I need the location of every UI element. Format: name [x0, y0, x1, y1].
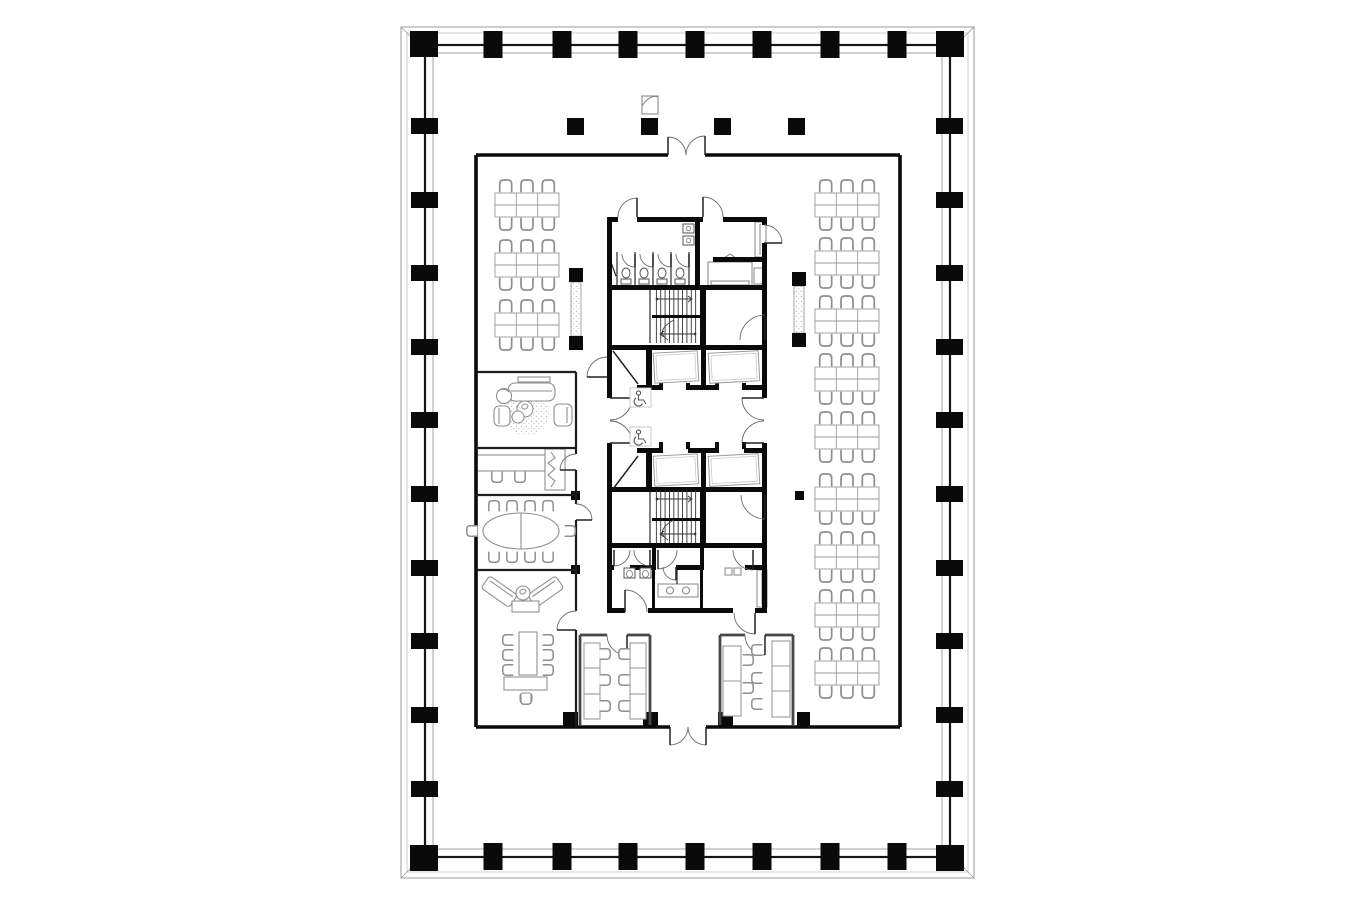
column	[936, 265, 963, 281]
door-swing-entry-south-left	[670, 727, 688, 745]
chair	[862, 628, 874, 640]
toilet	[622, 268, 630, 278]
core-wall	[652, 565, 655, 608]
chair	[500, 300, 512, 312]
door-arc	[688, 727, 706, 745]
corner-column	[936, 845, 964, 871]
chair	[841, 686, 853, 698]
toilet-tank	[675, 279, 685, 284]
elevator-car	[708, 351, 760, 384]
stair-landing	[652, 315, 700, 318]
desk-cluster	[815, 180, 879, 230]
column	[936, 633, 963, 649]
chair	[543, 501, 553, 512]
chair	[525, 501, 535, 512]
door-arc	[742, 398, 764, 420]
chair	[500, 218, 512, 230]
chair	[841, 392, 853, 404]
door-swing-lobby-west-a	[610, 398, 632, 420]
door-arc	[686, 136, 705, 155]
door-arc	[587, 357, 607, 377]
column	[936, 339, 963, 355]
core-wall	[723, 217, 767, 222]
toilet	[676, 268, 684, 278]
conference-furniture	[483, 513, 559, 549]
chair	[752, 699, 763, 709]
chair	[500, 338, 512, 350]
chair	[841, 276, 853, 288]
chair	[841, 238, 853, 250]
chair	[820, 512, 832, 524]
core-wall	[755, 608, 767, 613]
lounge-armchair	[554, 404, 572, 426]
door-arc	[764, 225, 782, 243]
chair	[820, 218, 832, 230]
column	[936, 560, 963, 576]
chair	[521, 694, 531, 705]
core-wall	[607, 285, 767, 290]
elevator-jamb	[686, 383, 690, 390]
door-swing-entry-north-left	[668, 137, 686, 155]
chair	[820, 296, 832, 308]
desk-cluster	[815, 296, 879, 346]
chair	[600, 701, 611, 711]
chair	[820, 648, 832, 660]
chair	[500, 240, 512, 252]
chair	[820, 474, 832, 486]
column	[553, 31, 572, 58]
column	[411, 560, 438, 576]
corner-column	[936, 31, 964, 57]
elevator-car	[653, 454, 699, 486]
arrow-tail	[694, 533, 697, 536]
chair	[862, 296, 874, 308]
corner-column	[410, 845, 438, 871]
desk-cluster	[815, 532, 879, 582]
chair	[489, 501, 499, 512]
toilet-tank	[639, 279, 649, 284]
door-arc	[557, 611, 576, 630]
door-leaf	[613, 456, 638, 489]
chair	[542, 278, 554, 290]
door-arc	[740, 315, 765, 340]
chair	[503, 665, 514, 675]
door-arc	[658, 550, 677, 569]
core-wall	[762, 217, 767, 225]
stairs	[652, 290, 700, 543]
desk-cluster	[815, 590, 879, 640]
door-swing-lobby-east-a	[742, 398, 764, 420]
door-swing-wc-south-exit	[625, 590, 647, 612]
chair	[862, 570, 874, 582]
chair	[515, 472, 525, 483]
core-wall	[701, 448, 706, 492]
column	[619, 843, 638, 870]
door-arc	[734, 613, 755, 634]
fire-cabinet	[642, 96, 658, 114]
door-arc	[618, 198, 637, 217]
door-arc	[663, 567, 676, 580]
door-swing-corridor-north	[587, 357, 607, 377]
arrow-tail	[656, 298, 659, 301]
accessibility-icons	[630, 388, 651, 446]
core-wall	[762, 443, 767, 613]
toilet	[640, 268, 648, 278]
chair	[841, 474, 853, 486]
chair	[862, 450, 874, 462]
chair	[862, 412, 874, 424]
chair	[542, 218, 554, 230]
column	[411, 707, 438, 723]
chair	[862, 334, 874, 346]
column	[553, 843, 572, 870]
screen-panel	[571, 282, 581, 336]
credenza	[504, 677, 547, 690]
small-office-furniture	[477, 449, 565, 490]
chair	[503, 635, 514, 645]
desk-cluster	[495, 180, 559, 230]
toilet-tank	[657, 279, 667, 284]
kitchen-counter	[708, 262, 752, 286]
core-wall	[700, 285, 706, 350]
chair	[489, 552, 499, 563]
chair	[862, 218, 874, 230]
door-swing-stall-4	[676, 254, 689, 267]
floor-plan-canvas	[0, 0, 1360, 900]
privacy-screen	[569, 268, 583, 350]
curtain-wall-line	[407, 33, 968, 872]
column	[411, 192, 438, 208]
door-swing-wc-stall-mid	[663, 567, 676, 580]
core-wall	[607, 608, 625, 613]
desk-cluster	[495, 240, 559, 290]
core-wall	[607, 217, 612, 398]
column	[888, 31, 907, 58]
core-wall	[607, 543, 767, 548]
core-wall	[646, 448, 652, 492]
door-arc	[658, 254, 671, 267]
chair	[862, 590, 874, 602]
chair	[521, 180, 533, 192]
wheelchair-icon	[630, 388, 651, 407]
column	[411, 412, 438, 428]
chair	[500, 180, 512, 192]
column	[411, 265, 438, 281]
chair	[862, 512, 874, 524]
core-wall	[744, 385, 762, 390]
door-arc	[625, 590, 647, 612]
sink-counter	[658, 584, 698, 597]
column	[788, 118, 805, 135]
column	[619, 31, 638, 58]
door-arc	[610, 421, 632, 443]
chair	[467, 526, 478, 536]
chair	[862, 532, 874, 544]
column	[569, 268, 583, 282]
lounge-console	[518, 377, 550, 382]
chair	[862, 276, 874, 288]
column	[792, 272, 806, 286]
door-arc	[634, 550, 650, 566]
column	[686, 31, 705, 58]
column	[411, 781, 438, 797]
walk-line	[662, 320, 674, 340]
door-swing-vestibule-a2	[634, 550, 650, 566]
chair	[841, 532, 853, 544]
chair	[543, 635, 554, 645]
column	[411, 118, 438, 134]
door-swing-entry-south-right	[688, 727, 706, 745]
chair	[542, 300, 554, 312]
door-swing-vestibule-a1	[614, 550, 630, 566]
door-arc	[670, 727, 688, 745]
door-arc	[741, 495, 765, 519]
core-wall	[701, 345, 706, 390]
chair	[820, 686, 832, 698]
chair	[752, 645, 763, 655]
desk	[477, 455, 545, 471]
column	[936, 707, 963, 723]
elevator-jamb	[742, 383, 746, 390]
column	[936, 118, 963, 134]
stair-flight	[652, 290, 700, 343]
chair	[600, 649, 611, 659]
privacy-screens	[569, 268, 806, 350]
desk-cluster	[815, 354, 879, 404]
urinal	[640, 568, 651, 578]
chair	[862, 180, 874, 192]
urinal	[624, 568, 635, 578]
elevator-jamb	[659, 383, 663, 390]
column	[753, 843, 772, 870]
chair	[507, 552, 517, 563]
column	[569, 336, 583, 350]
side-table	[516, 586, 530, 600]
chair	[862, 474, 874, 486]
column	[792, 333, 806, 347]
wheelchair-icon	[630, 427, 651, 446]
chair	[503, 650, 514, 660]
mens-wc-fixtures	[658, 568, 767, 607]
door-swing-entry-north-right	[686, 136, 705, 155]
chair	[820, 392, 832, 404]
toilet	[658, 268, 666, 278]
chair	[521, 218, 533, 230]
chair	[862, 392, 874, 404]
door-swing-stall-2	[640, 254, 653, 267]
chair	[841, 450, 853, 462]
core-wall	[695, 217, 700, 290]
column	[936, 192, 963, 208]
core-wall	[676, 565, 703, 570]
chair	[841, 412, 853, 424]
elevator-jamb	[715, 383, 719, 390]
sink	[683, 224, 694, 233]
chair	[841, 354, 853, 366]
core-wall	[744, 448, 762, 453]
door-swing-pantry-east	[764, 225, 782, 243]
chair	[820, 354, 832, 366]
door-arc	[614, 550, 630, 566]
column	[411, 486, 438, 502]
column	[484, 843, 503, 870]
chair	[820, 412, 832, 424]
column	[411, 339, 438, 355]
walk-line	[662, 520, 674, 540]
column	[686, 843, 705, 870]
chair	[820, 238, 832, 250]
elevator-car	[653, 351, 699, 383]
column	[411, 633, 438, 649]
chair	[841, 334, 853, 346]
chair	[841, 590, 853, 602]
door-swing-meeting-lounge-door	[557, 611, 576, 630]
chair	[521, 240, 533, 252]
chair	[525, 552, 535, 563]
chair	[820, 570, 832, 582]
chair	[543, 552, 553, 563]
chair	[619, 675, 630, 685]
chair	[543, 650, 554, 660]
door-swing-stall-3	[658, 254, 671, 267]
elevator-jamb	[686, 442, 690, 449]
chair	[862, 686, 874, 698]
chair	[542, 338, 554, 350]
elevator-jamb	[659, 442, 663, 449]
floor-plan-page	[0, 0, 1360, 900]
door-swing-stair-north-room	[740, 315, 765, 340]
chair	[619, 701, 630, 711]
coffee-table	[512, 601, 539, 612]
meeting-table	[519, 632, 537, 675]
chair	[820, 450, 832, 462]
chair	[565, 526, 576, 536]
door-arc	[703, 197, 723, 217]
screen-panel	[794, 286, 804, 333]
chair	[841, 570, 853, 582]
desk-cluster	[815, 238, 879, 288]
column	[797, 712, 810, 726]
column	[936, 412, 963, 428]
chair	[752, 673, 763, 683]
chair	[862, 648, 874, 660]
chair	[841, 296, 853, 308]
chair	[743, 683, 754, 693]
column	[936, 486, 963, 502]
chair	[862, 354, 874, 366]
chair	[841, 512, 853, 524]
column	[888, 843, 907, 870]
door-swing-vestibule-b	[658, 550, 677, 569]
chair	[743, 655, 754, 665]
elevator-jamb	[715, 442, 719, 449]
core-wall	[713, 257, 762, 262]
door-swing-service-exit	[734, 613, 755, 634]
chair	[820, 276, 832, 288]
sink	[683, 236, 694, 245]
lounge-table	[512, 411, 524, 423]
door-swing-stall-1	[622, 254, 635, 267]
core-wall	[646, 345, 652, 390]
chair	[521, 338, 533, 350]
elevators	[653, 351, 760, 487]
desk-clusters-right	[815, 180, 879, 698]
door-arc	[622, 254, 635, 267]
chair	[600, 675, 611, 685]
chair	[507, 501, 517, 512]
chair	[820, 180, 832, 192]
core-wall	[607, 345, 767, 350]
lounge-sofa	[508, 383, 555, 401]
chair	[619, 649, 630, 659]
pantry-fixtures	[708, 222, 766, 286]
column	[641, 118, 658, 135]
desk-cluster	[495, 300, 559, 350]
core-wall	[700, 487, 706, 548]
chair	[543, 665, 554, 675]
chair	[500, 278, 512, 290]
chair	[521, 300, 533, 312]
chair	[542, 180, 554, 192]
chair	[820, 590, 832, 602]
stair-flight	[652, 490, 700, 543]
column	[484, 31, 503, 58]
door-swing-wc-entry	[618, 198, 637, 217]
column	[567, 118, 584, 135]
icon-frame	[630, 427, 651, 446]
chair	[492, 472, 502, 483]
core-wall	[648, 608, 733, 613]
perimeter-columns	[410, 31, 964, 871]
chair	[862, 238, 874, 250]
chair	[542, 240, 554, 252]
chair	[521, 278, 533, 290]
door-swing-conference-door	[576, 504, 592, 520]
column	[821, 843, 840, 870]
door-arc	[576, 504, 592, 520]
door-arc	[640, 254, 653, 267]
column	[936, 781, 963, 797]
core-wall	[607, 565, 614, 570]
door-arc	[610, 398, 632, 420]
door-arc	[742, 421, 764, 443]
privacy-screen	[792, 272, 806, 347]
lounge-furniture	[494, 377, 572, 436]
door-swing-stair-south-room	[741, 495, 765, 519]
door-arc	[668, 137, 686, 155]
desk-clusters-left	[495, 180, 559, 350]
door-swing-pantry-entry	[703, 197, 723, 217]
chair	[820, 532, 832, 544]
desk-cluster	[815, 474, 879, 524]
chair	[820, 334, 832, 346]
door-arc	[676, 254, 689, 267]
column	[821, 31, 840, 58]
icon-frame	[630, 388, 651, 407]
chair	[820, 628, 832, 640]
column	[795, 491, 804, 500]
door-swing-lobby-east-b	[742, 421, 764, 443]
chair	[841, 180, 853, 192]
toilet-tank	[621, 279, 631, 284]
corner-column	[410, 31, 438, 57]
elevator-car	[708, 454, 760, 487]
chair	[841, 648, 853, 660]
chair	[841, 218, 853, 230]
lounge-armchair	[494, 406, 510, 426]
core-wall	[637, 217, 703, 222]
arrow-tail	[694, 333, 697, 336]
